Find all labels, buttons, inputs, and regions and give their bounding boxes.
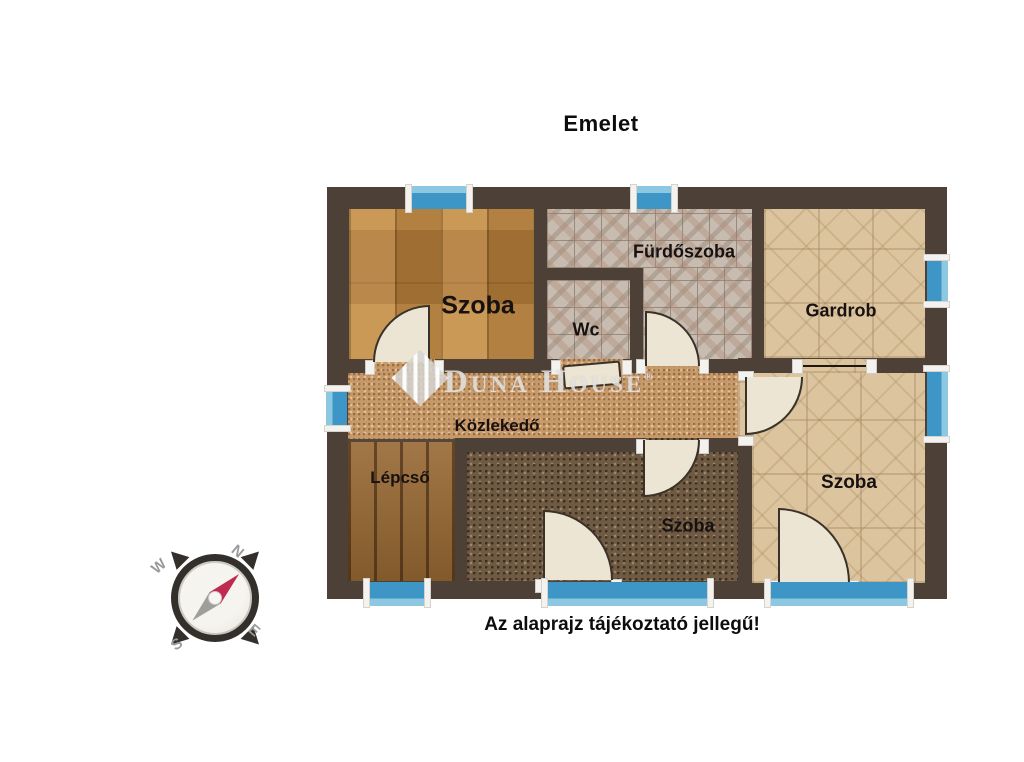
window-szoba-right-bottom [764, 578, 914, 608]
door-leaf-wc [562, 361, 622, 390]
door-jamb [738, 436, 754, 446]
door-jamb [434, 360, 444, 375]
window-frame [671, 184, 678, 213]
wall-szoba-wc [534, 209, 547, 362]
lepcso-edge-line [348, 439, 455, 442]
room-kozlekedo-floor [348, 373, 738, 439]
window-frame [324, 385, 351, 392]
window-frame [541, 578, 548, 608]
label-wc: Wc [573, 320, 600, 341]
label-lepcso: Lépcső [370, 468, 430, 488]
label-gardrob: Gardrob [805, 301, 876, 322]
label-kozlekedo: Közlekedő [454, 416, 539, 436]
window-frame [923, 436, 950, 443]
wall-furdoszoba-gardrob [752, 209, 764, 358]
window-lepcso [363, 578, 431, 608]
window-gardrob [923, 254, 950, 308]
window-frame [707, 578, 714, 608]
door-jamb [365, 360, 375, 375]
window-frame [363, 578, 370, 608]
passage-gardrob-line [798, 365, 869, 367]
floorplan-page: Emelet [0, 0, 1024, 762]
disclaimer-text: Az alaprajz tájékoztató jellegű! [362, 614, 882, 636]
window-szoba-right-side [923, 365, 950, 443]
label-furdoszoba: Fürdőszoba [633, 242, 735, 263]
window-szoba-top-left [405, 184, 473, 213]
window-pane [927, 260, 948, 302]
window-frame [907, 578, 914, 608]
wall-wc-furdoszoba-horizontal [547, 268, 630, 280]
wall-wc-furdoszoba-vertical [630, 268, 643, 362]
window-frame [764, 578, 771, 608]
window-frame [923, 301, 950, 308]
window-pane [326, 391, 347, 426]
window-kozlekedo [324, 385, 351, 432]
window-pane [547, 582, 708, 606]
label-szoba-right: Szoba [821, 472, 877, 494]
window-pane [927, 371, 948, 437]
door-jamb [699, 439, 709, 454]
window-frame [405, 184, 412, 213]
window-pane [636, 186, 672, 209]
room-lepcso-floor [348, 442, 455, 581]
compass-rose [171, 554, 259, 642]
window-frame [923, 254, 950, 261]
window-szoba-bottom [541, 578, 714, 608]
window-pane [411, 186, 467, 209]
label-szoba-top-left: Szoba [441, 292, 515, 321]
door-jamb [551, 360, 561, 375]
room-gardrob-floor [764, 209, 925, 358]
window-frame [466, 184, 473, 213]
window-pane [770, 582, 908, 606]
window-pane [369, 582, 425, 606]
window-frame [630, 184, 637, 213]
window-frame [424, 578, 431, 608]
door-jamb [699, 359, 709, 374]
window-frame [324, 425, 351, 432]
label-szoba-bottom: Szoba [661, 516, 714, 537]
window-frame [923, 365, 950, 372]
door-jamb [792, 359, 803, 374]
page-title: Emelet [501, 111, 701, 137]
wall-lepcso-szoba [455, 438, 467, 581]
door-jamb [622, 360, 632, 375]
window-furdoszoba [630, 184, 678, 213]
door-jamb [866, 359, 877, 374]
